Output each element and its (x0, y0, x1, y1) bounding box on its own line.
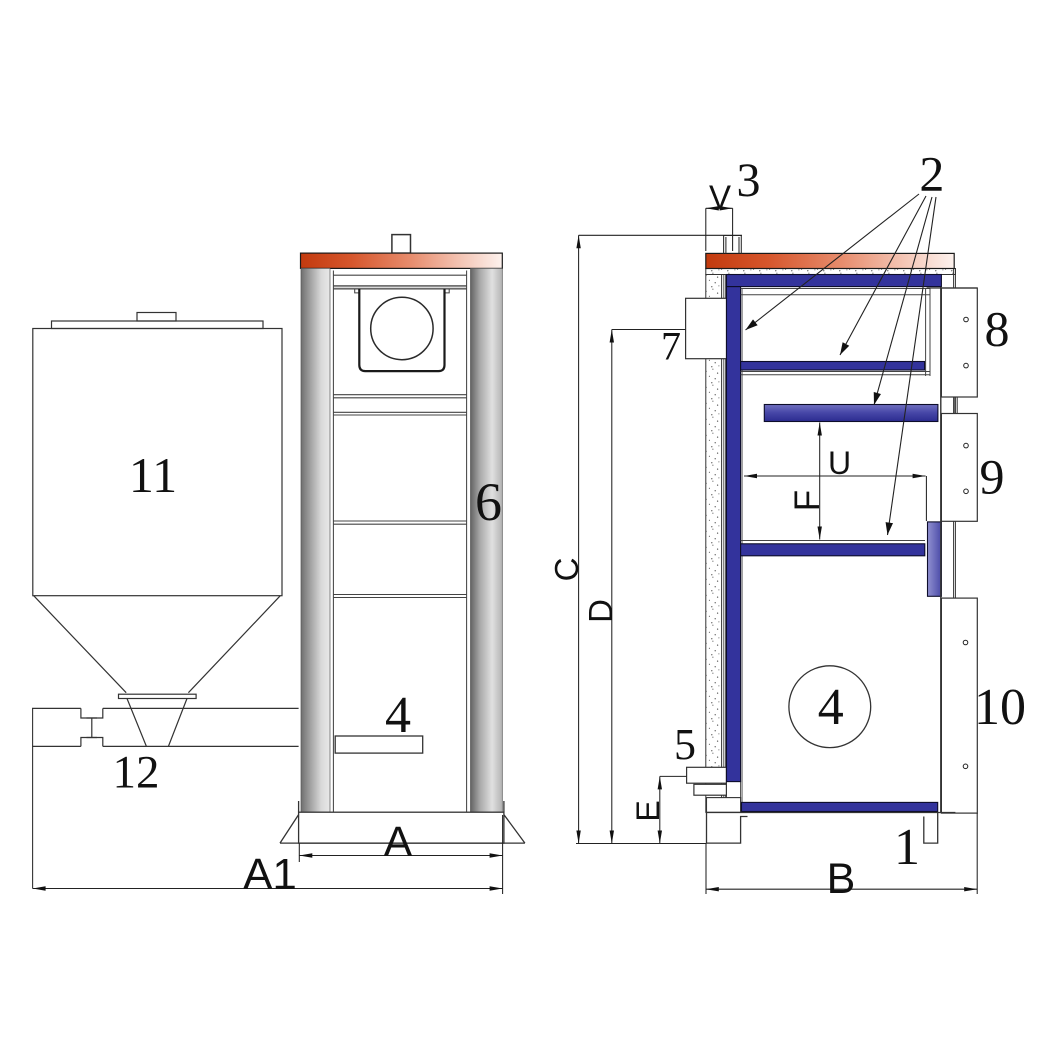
svg-text:12: 12 (113, 747, 160, 799)
svg-text:4: 4 (818, 679, 844, 736)
svg-text:A: A (384, 818, 413, 866)
svg-text:B: B (827, 855, 856, 903)
svg-text:V: V (709, 179, 731, 216)
svg-text:11: 11 (129, 447, 177, 503)
svg-text:8: 8 (985, 301, 1010, 357)
svg-text:4: 4 (385, 687, 411, 744)
svg-text:C: C (548, 558, 585, 582)
svg-text:9: 9 (980, 449, 1005, 505)
svg-text:E: E (630, 800, 666, 821)
svg-text:F: F (788, 490, 827, 511)
svg-text:6: 6 (475, 472, 502, 532)
svg-text:7: 7 (661, 324, 681, 369)
svg-text:U: U (828, 445, 851, 481)
svg-text:D: D (582, 599, 619, 623)
svg-text:5: 5 (674, 720, 696, 769)
svg-text:10: 10 (974, 679, 1026, 736)
svg-text:2: 2 (919, 146, 944, 202)
svg-text:1: 1 (894, 819, 920, 876)
svg-text:3: 3 (737, 154, 761, 207)
svg-text:A1: A1 (243, 850, 297, 899)
